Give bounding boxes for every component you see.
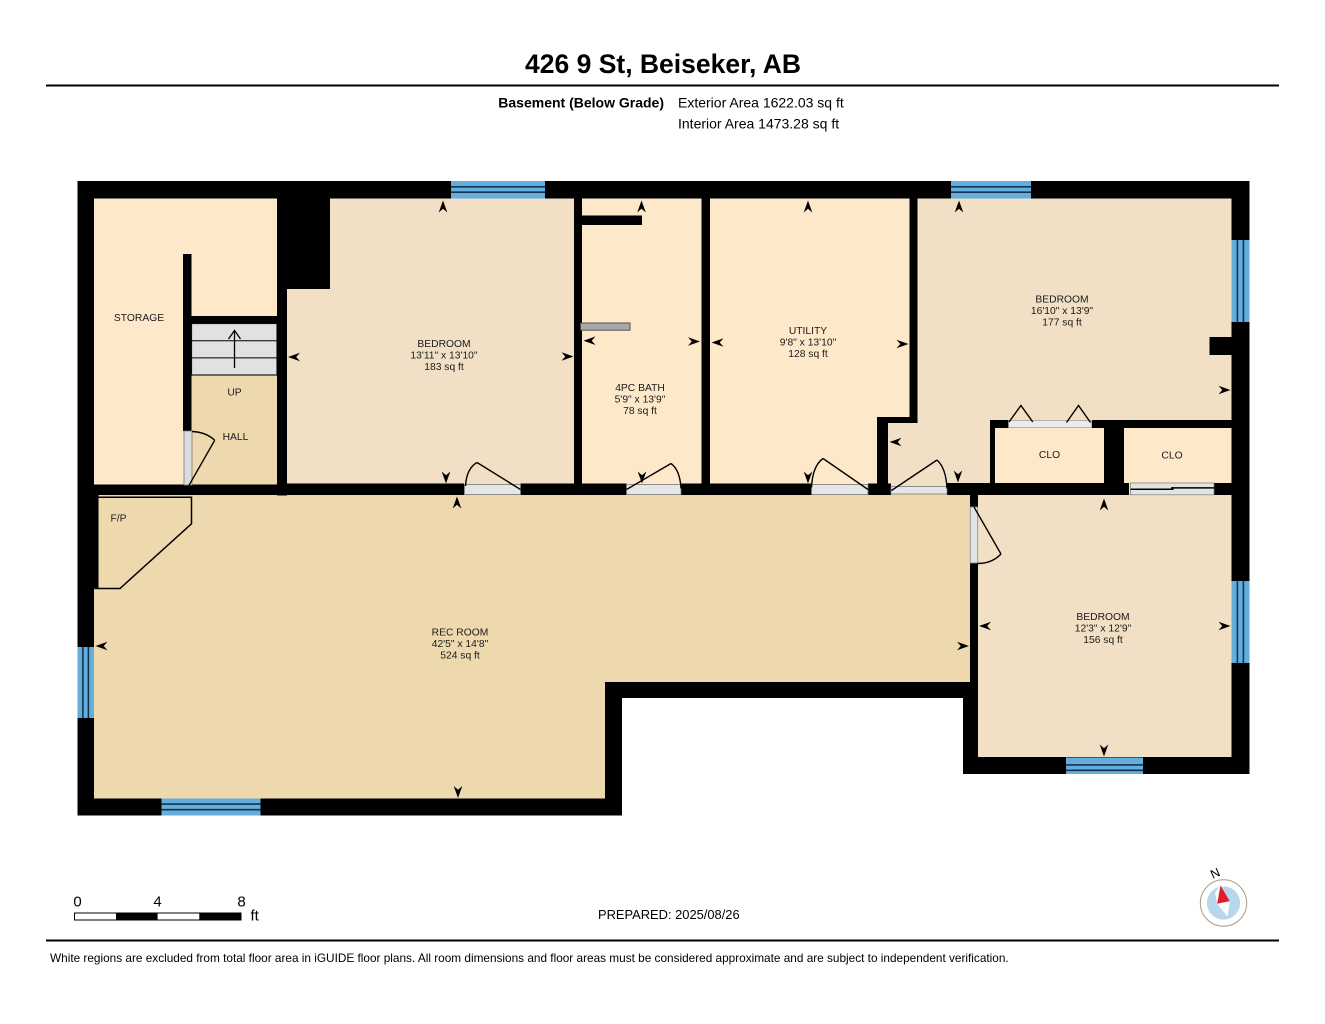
svg-text:F/P: F/P [110, 514, 126, 525]
svg-text:BEDROOM: BEDROOM [1035, 295, 1088, 306]
svg-text:BEDROOM: BEDROOM [417, 339, 470, 350]
svg-text:Interior Area 1473.28 sq ft: Interior Area 1473.28 sq ft [678, 116, 839, 132]
svg-text:BEDROOM: BEDROOM [1076, 612, 1129, 623]
svg-text:ft: ft [251, 908, 260, 925]
svg-text:16'10" x 13'9": 16'10" x 13'9" [1031, 306, 1094, 317]
svg-text:426 9 St, Beiseker, AB: 426 9 St, Beiseker, AB [525, 49, 801, 79]
svg-text:4PC BATH: 4PC BATH [615, 383, 665, 394]
svg-text:524 sq ft: 524 sq ft [440, 651, 480, 662]
svg-text:CLO: CLO [1161, 451, 1182, 462]
svg-text:4: 4 [153, 894, 161, 911]
svg-text:12'3" x 12'9": 12'3" x 12'9" [1075, 624, 1132, 635]
svg-text:13'11" x 13'10": 13'11" x 13'10" [410, 351, 478, 362]
svg-text:42'5" x 14'8": 42'5" x 14'8" [432, 639, 489, 650]
svg-text:5'9" x 13'9": 5'9" x 13'9" [615, 395, 666, 406]
svg-text:UTILITY: UTILITY [789, 326, 827, 337]
svg-text:Exterior Area 1622.03 sq ft: Exterior Area 1622.03 sq ft [678, 95, 844, 111]
svg-text:REC ROOM: REC ROOM [432, 628, 489, 639]
svg-text:Basement (Below Grade): Basement (Below Grade) [498, 95, 664, 111]
svg-text:PREPARED: 2025/08/26: PREPARED: 2025/08/26 [598, 907, 740, 922]
svg-text:UP: UP [227, 388, 241, 399]
svg-text:128 sq ft: 128 sq ft [788, 349, 828, 360]
svg-text:HALL: HALL [223, 432, 249, 443]
svg-text:156 sq ft: 156 sq ft [1083, 635, 1123, 646]
svg-text:0: 0 [73, 894, 81, 911]
svg-text:STORAGE: STORAGE [114, 313, 164, 324]
svg-text:8: 8 [237, 894, 245, 911]
svg-text:CLO: CLO [1039, 450, 1060, 461]
svg-text:White regions are excluded fro: White regions are excluded from total fl… [50, 951, 1009, 965]
svg-text:78 sq ft: 78 sq ft [623, 406, 657, 417]
svg-text:9'8" x 13'10": 9'8" x 13'10" [780, 338, 837, 349]
svg-text:177 sq ft: 177 sq ft [1042, 318, 1082, 329]
svg-text:183 sq ft: 183 sq ft [424, 362, 464, 373]
